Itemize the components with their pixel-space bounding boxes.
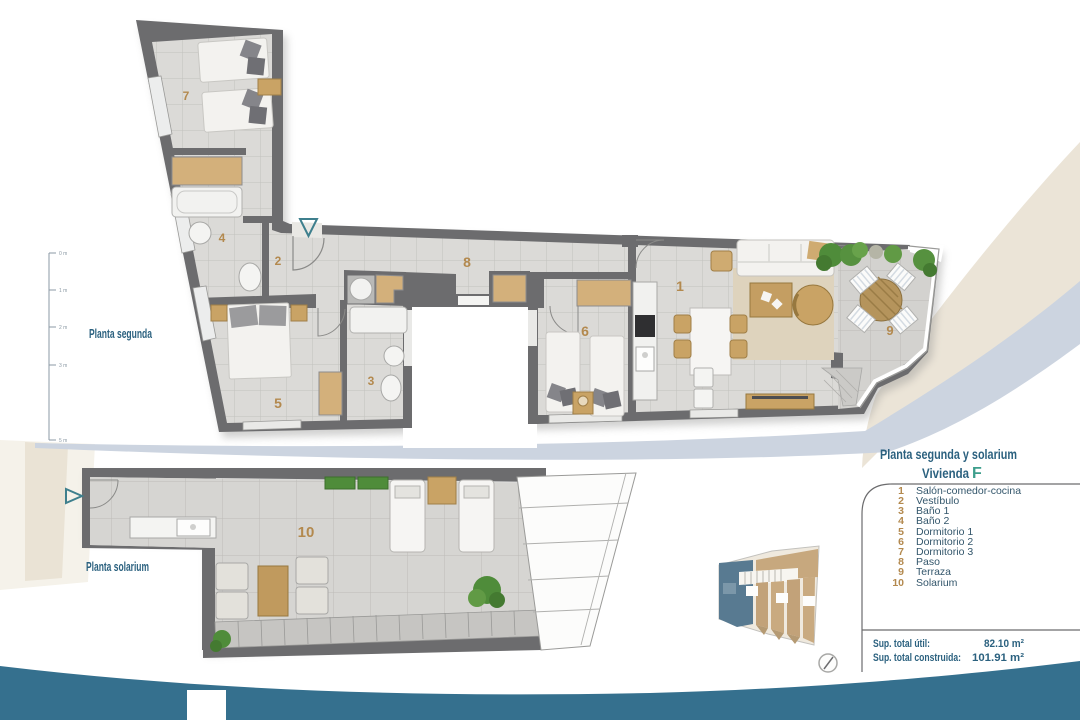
svg-text:9: 9 <box>886 323 893 338</box>
svg-text:Planta segunda: Planta segunda <box>89 327 153 341</box>
svg-text:F: F <box>972 465 982 482</box>
svg-text:3: 3 <box>368 374 375 388</box>
svg-text:5: 5 <box>274 395 282 411</box>
svg-text:6: 6 <box>581 323 589 339</box>
svg-text:0 m: 0 m <box>59 251 67 257</box>
svg-text:101.91 m²: 101.91 m² <box>972 652 1024 664</box>
svg-text:1 m: 1 m <box>59 288 67 294</box>
svg-text:3 m: 3 m <box>59 363 67 369</box>
svg-text:Vivienda: Vivienda <box>922 465 969 481</box>
svg-text:10: 10 <box>298 524 315 541</box>
svg-text:Planta segunda y solarium: Planta segunda y solarium <box>880 446 1017 462</box>
svg-text:4: 4 <box>219 231 226 245</box>
svg-text:82.10 m²: 82.10 m² <box>984 638 1024 650</box>
svg-text:5 m: 5 m <box>59 438 67 444</box>
svg-text:Sup. total construida:: Sup. total construida: <box>873 652 961 664</box>
svg-text:1: 1 <box>676 278 684 294</box>
svg-text:10: 10 <box>892 577 904 589</box>
svg-text:8: 8 <box>463 254 471 270</box>
svg-text:Planta solarium: Planta solarium <box>86 560 149 574</box>
svg-text:Solarium: Solarium <box>916 577 958 589</box>
svg-text:7: 7 <box>183 89 190 103</box>
svg-text:Sup. total útil:: Sup. total útil: <box>873 638 930 650</box>
svg-text:2 m: 2 m <box>59 325 67 331</box>
svg-text:2: 2 <box>275 254 282 268</box>
